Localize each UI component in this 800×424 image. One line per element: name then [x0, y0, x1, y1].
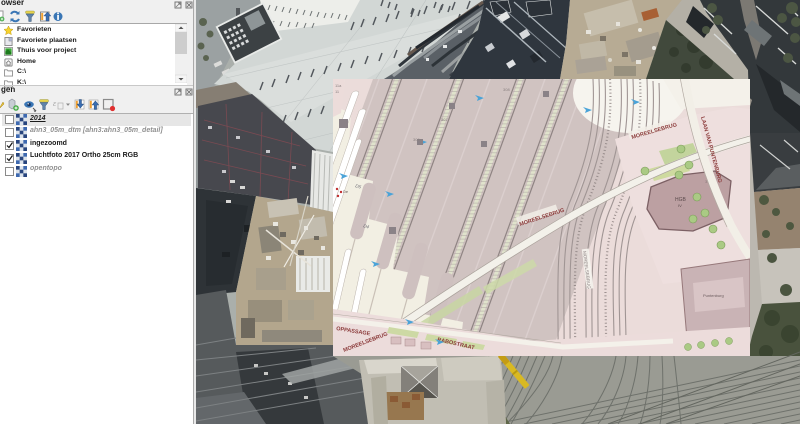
svg-text:Puntenburg: Puntenburg	[703, 293, 724, 298]
svg-text:ε: ε	[53, 99, 57, 108]
svg-text:IV: IV	[678, 203, 682, 208]
svg-text:308: 308	[503, 87, 510, 92]
svg-text:307: 307	[441, 117, 448, 122]
svg-text:De: De	[343, 189, 349, 194]
svg-text:306: 306	[413, 137, 420, 142]
svg-text:11a: 11a	[335, 83, 342, 88]
